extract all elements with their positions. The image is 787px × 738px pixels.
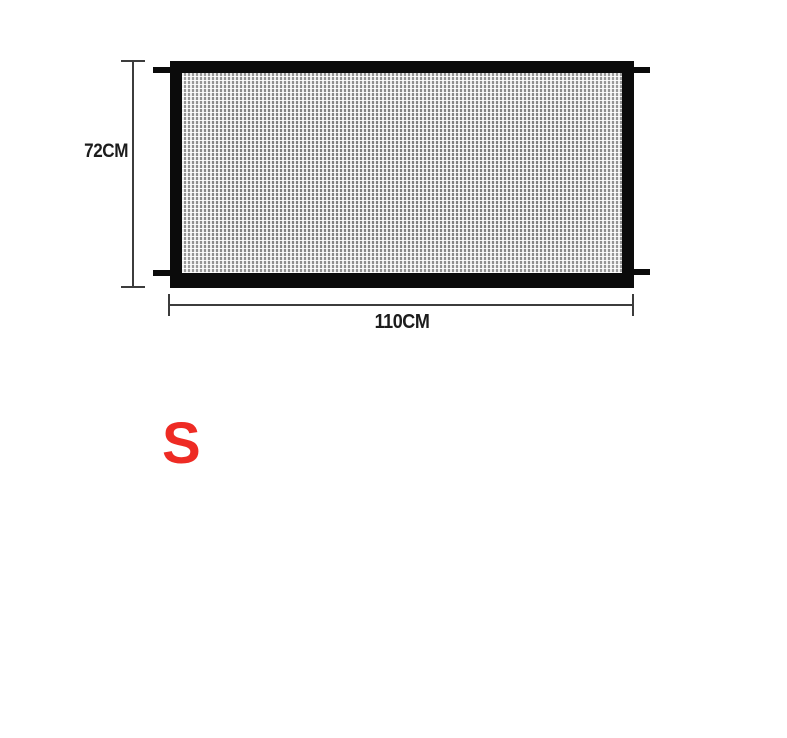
mounting-tab-top-right xyxy=(633,67,650,73)
product-dimension-diagram: 72CM 110CM S xyxy=(0,0,787,738)
width-dimension-line xyxy=(169,304,634,306)
gate-mesh-panel xyxy=(182,73,622,273)
mounting-tab-bottom-left xyxy=(153,270,170,276)
mounting-tab-top-left xyxy=(153,67,170,73)
width-dimension-label: 110CM xyxy=(335,311,470,334)
height-dimension-label: 72CM xyxy=(63,141,128,163)
mounting-tab-bottom-right xyxy=(633,269,650,275)
width-dimension-tick-right xyxy=(632,294,634,316)
height-dimension-cap-bottom xyxy=(121,286,145,288)
height-dimension-line xyxy=(132,61,134,287)
gate-frame xyxy=(170,61,634,288)
size-label: S xyxy=(162,415,201,473)
